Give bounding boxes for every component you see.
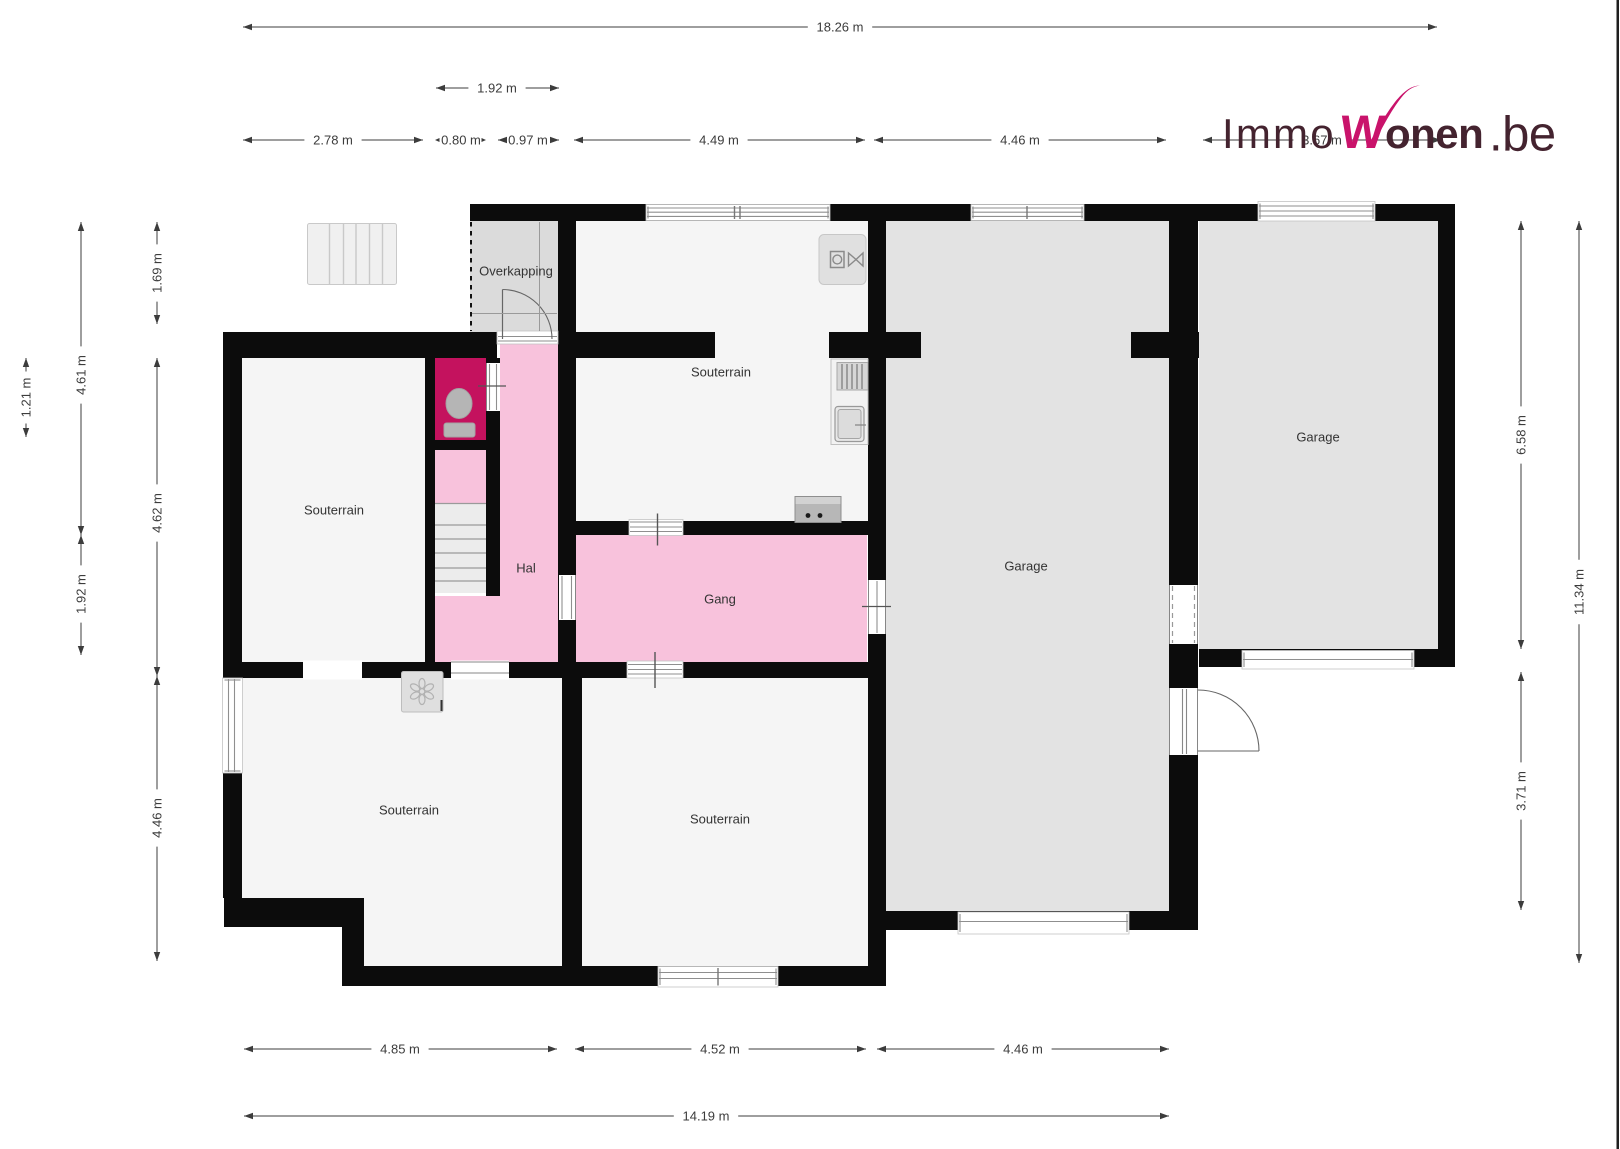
svg-text:4.62 m: 4.62 m: [150, 493, 165, 533]
svg-text:4.85 m: 4.85 m: [380, 1042, 420, 1057]
svg-text:11.34 m: 11.34 m: [1572, 569, 1587, 615]
svg-text:1.92 m: 1.92 m: [477, 81, 517, 96]
svg-text:Gang: Gang: [704, 592, 736, 607]
svg-text:4.46 m: 4.46 m: [1000, 133, 1040, 148]
svg-text:.be: .be: [1489, 108, 1556, 162]
svg-text:0.97 m: 0.97 m: [508, 133, 548, 148]
svg-text:18.26 m: 18.26 m: [817, 20, 864, 35]
svg-text:1.21 m: 1.21 m: [19, 378, 34, 418]
svg-text:4.61 m: 4.61 m: [74, 355, 89, 395]
svg-text:Souterrain: Souterrain: [379, 803, 439, 818]
svg-text:Souterrain: Souterrain: [691, 365, 751, 380]
svg-text:4.46 m: 4.46 m: [1003, 1042, 1043, 1057]
svg-text:Immo: Immo: [1222, 110, 1336, 157]
svg-text:Overkapping: Overkapping: [479, 264, 553, 279]
svg-text:0.80 m: 0.80 m: [441, 133, 481, 148]
svg-text:Souterrain: Souterrain: [304, 503, 364, 518]
svg-text:14.19 m: 14.19 m: [683, 1109, 730, 1124]
svg-text:4.49 m: 4.49 m: [699, 133, 739, 148]
svg-text:Garage: Garage: [1004, 559, 1047, 574]
svg-text:3.71 m: 3.71 m: [1514, 771, 1529, 811]
svg-text:Hal: Hal: [516, 561, 536, 576]
svg-text:Souterrain: Souterrain: [690, 812, 750, 827]
svg-text:2.78 m: 2.78 m: [313, 133, 353, 148]
svg-text:4.46 m: 4.46 m: [150, 798, 165, 838]
svg-text:6.58 m: 6.58 m: [1514, 415, 1529, 455]
svg-text:1.92 m: 1.92 m: [74, 574, 89, 614]
svg-text:1.69 m: 1.69 m: [150, 253, 165, 293]
svg-text:Garage: Garage: [1296, 430, 1339, 445]
svg-text:onen: onen: [1385, 110, 1483, 157]
svg-text:4.52 m: 4.52 m: [700, 1042, 740, 1057]
